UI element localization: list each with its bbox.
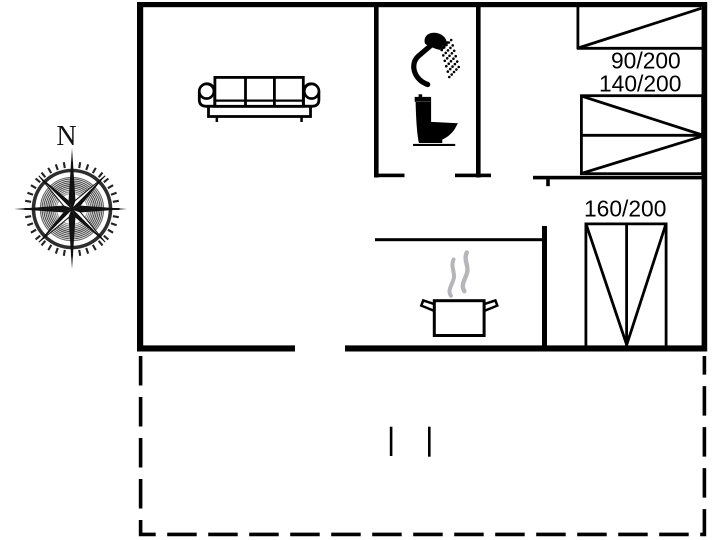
svg-text:N: N bbox=[56, 121, 76, 152]
svg-text:140/200: 140/200 bbox=[599, 70, 681, 96]
svg-text:160/200: 160/200 bbox=[584, 196, 666, 222]
